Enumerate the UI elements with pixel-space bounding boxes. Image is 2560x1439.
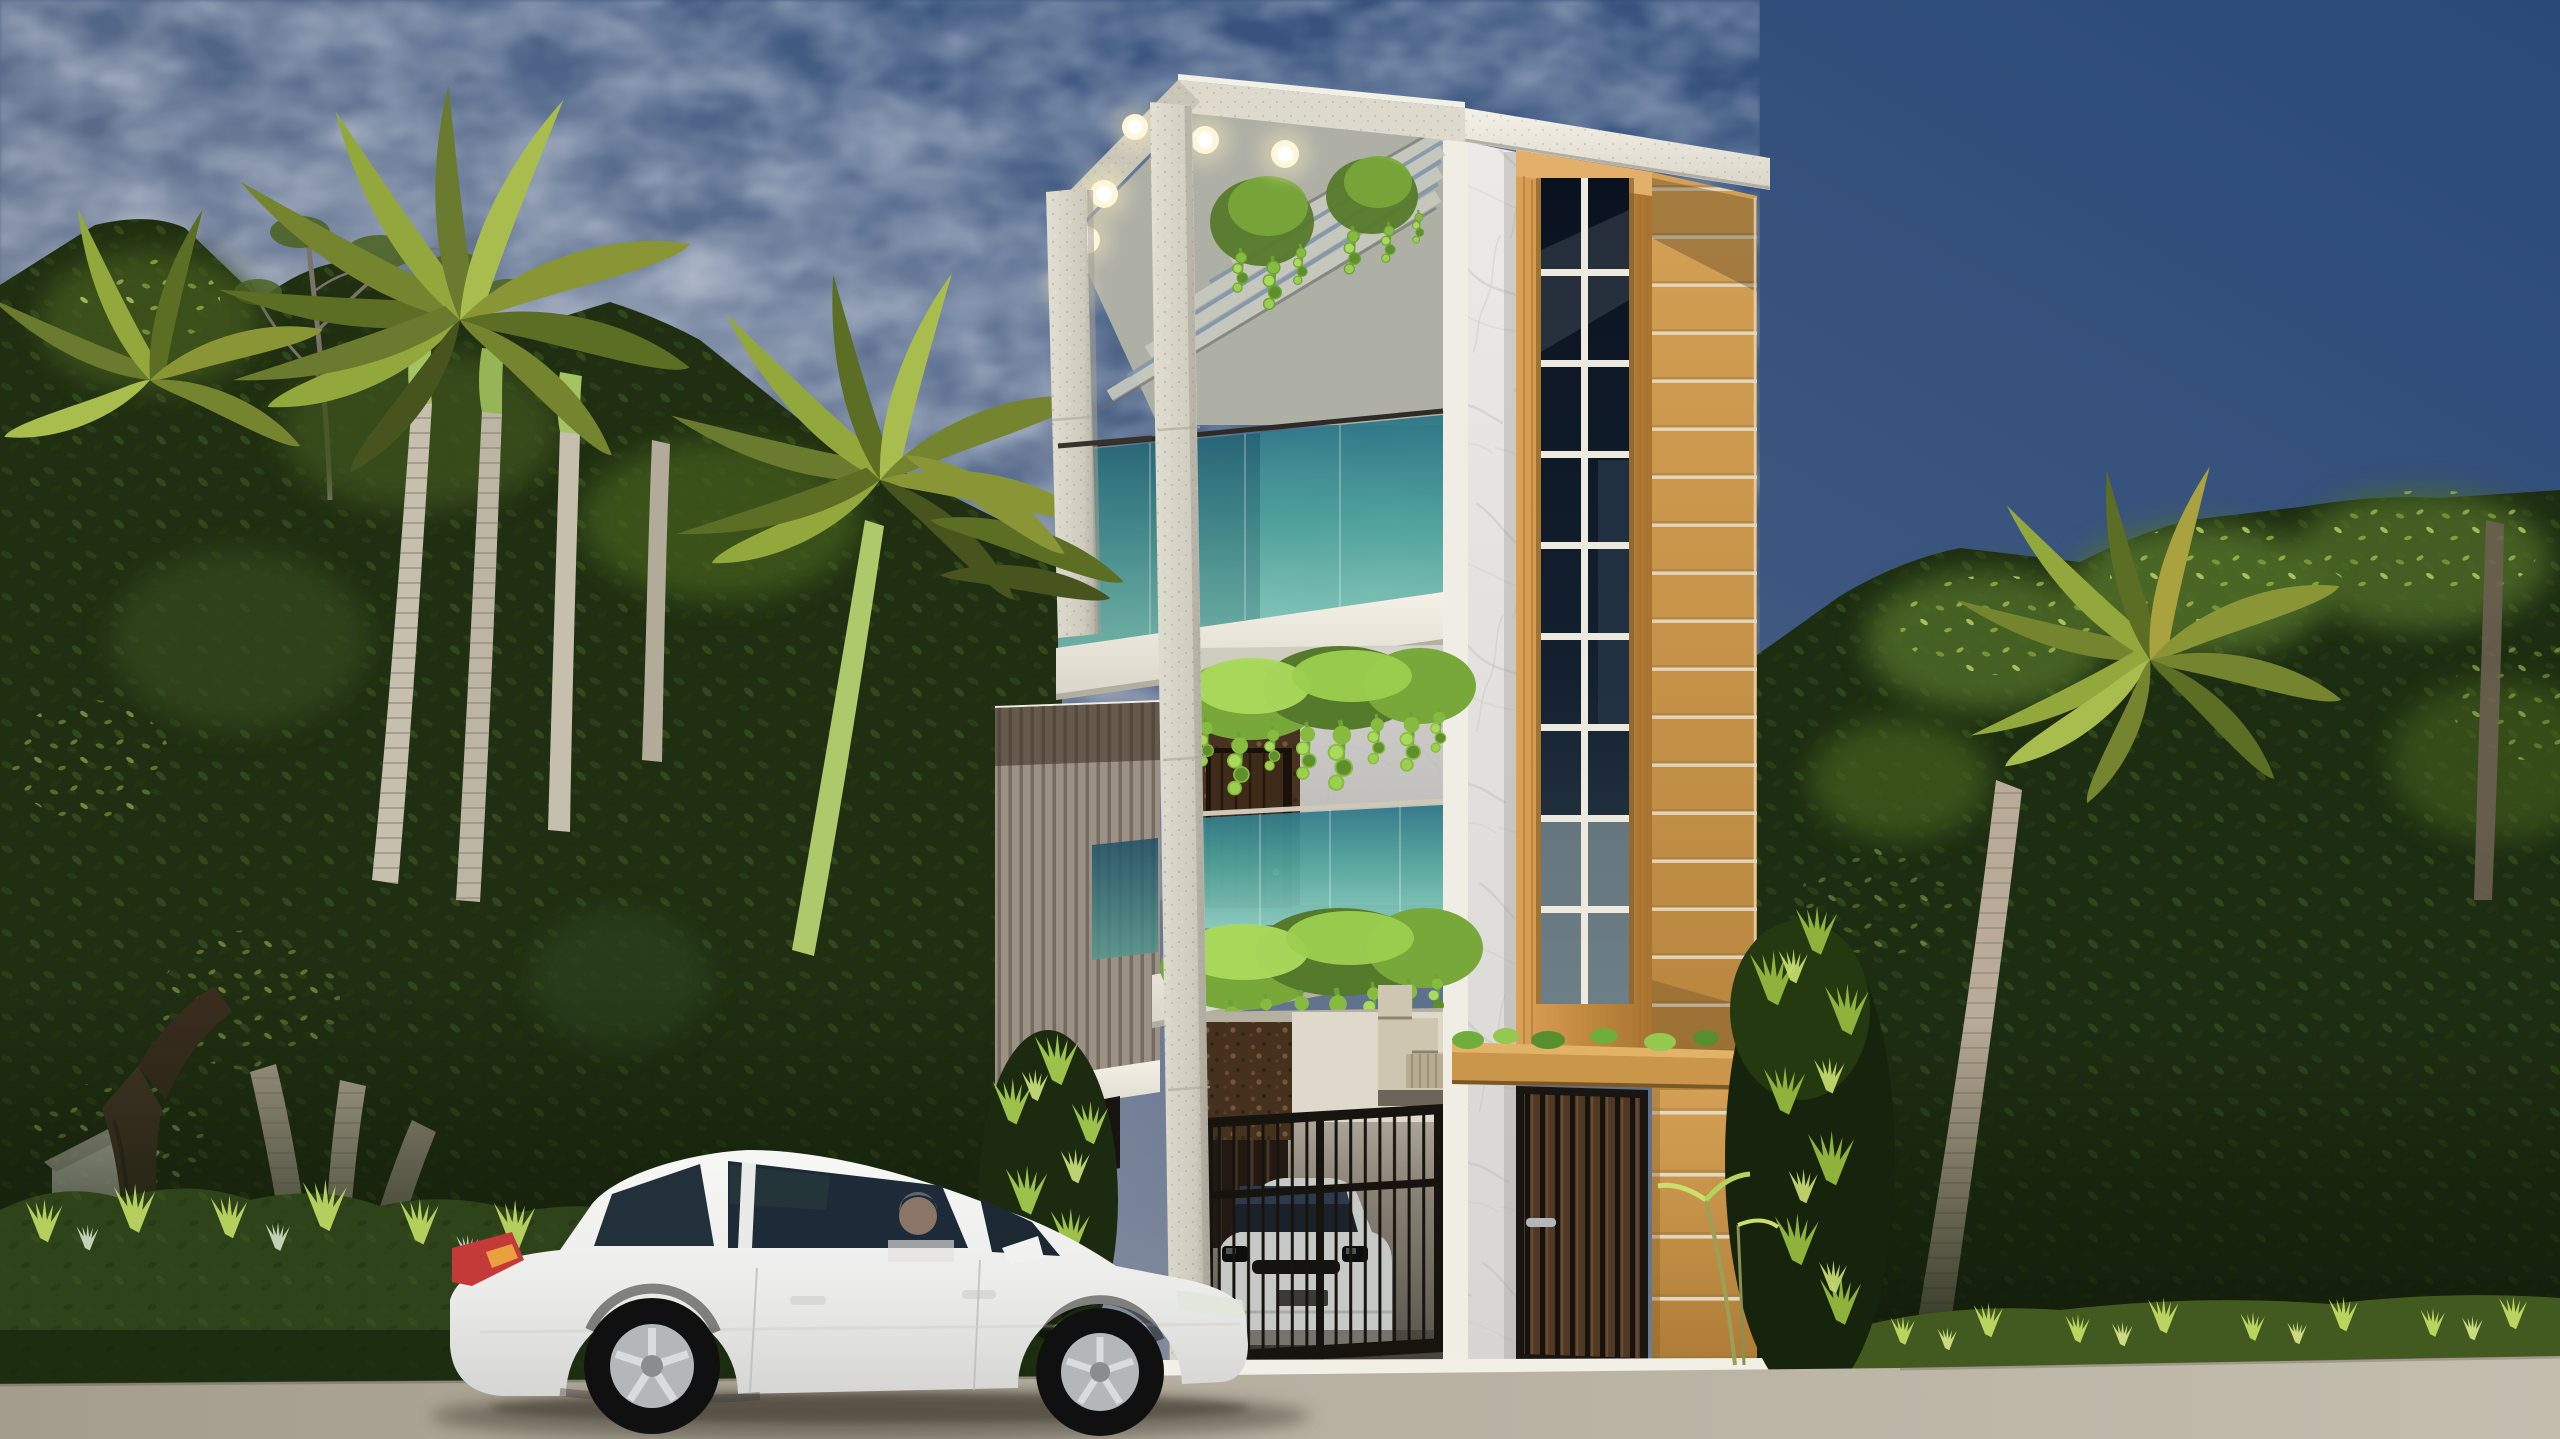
glass-reflection-mid	[1598, 460, 1629, 730]
window-column	[1516, 150, 1652, 1050]
render-canvas: Photorealistic dusk render of a narrow m…	[0, 0, 2560, 1439]
light	[1259, 128, 1311, 180]
annex-top-shade	[995, 702, 1160, 766]
architectural-render: Photorealistic dusk render of a narrow m…	[0, 0, 2560, 1439]
pier-corner-band	[1443, 138, 1468, 1362]
gate-leaf-divider	[1316, 1112, 1324, 1362]
pier-edge-shadow	[1504, 152, 1516, 1362]
door-handle-rear	[790, 1296, 826, 1305]
entry-door	[1516, 1086, 1648, 1366]
rear-wheel	[584, 1289, 720, 1434]
front-wheel	[1036, 1300, 1164, 1436]
stair-underside	[1378, 1090, 1443, 1106]
marble-pier	[1443, 138, 1516, 1362]
annex-side-glass	[1092, 838, 1158, 960]
entry-door-handle	[1526, 1218, 1556, 1227]
